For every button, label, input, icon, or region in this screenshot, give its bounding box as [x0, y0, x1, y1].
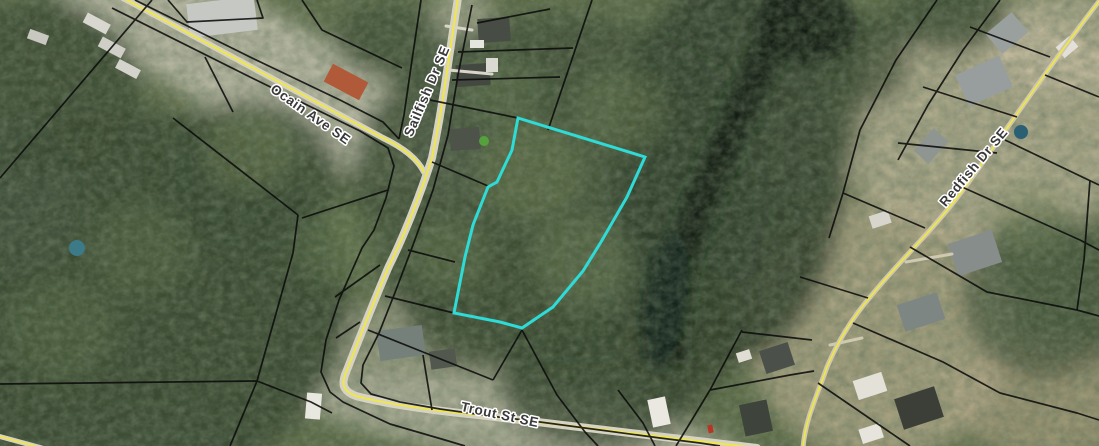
building [486, 58, 498, 72]
building [477, 17, 511, 43]
bright-tree [479, 136, 489, 146]
swimming-pool [69, 240, 85, 256]
map-canvas[interactable]: Ocain Ave SE Sailfish Dr SE Redfish Dr S… [0, 0, 1099, 446]
swimming-pool [1014, 125, 1028, 139]
building [429, 348, 457, 369]
building [455, 63, 490, 87]
building [470, 40, 484, 48]
building [449, 127, 480, 151]
